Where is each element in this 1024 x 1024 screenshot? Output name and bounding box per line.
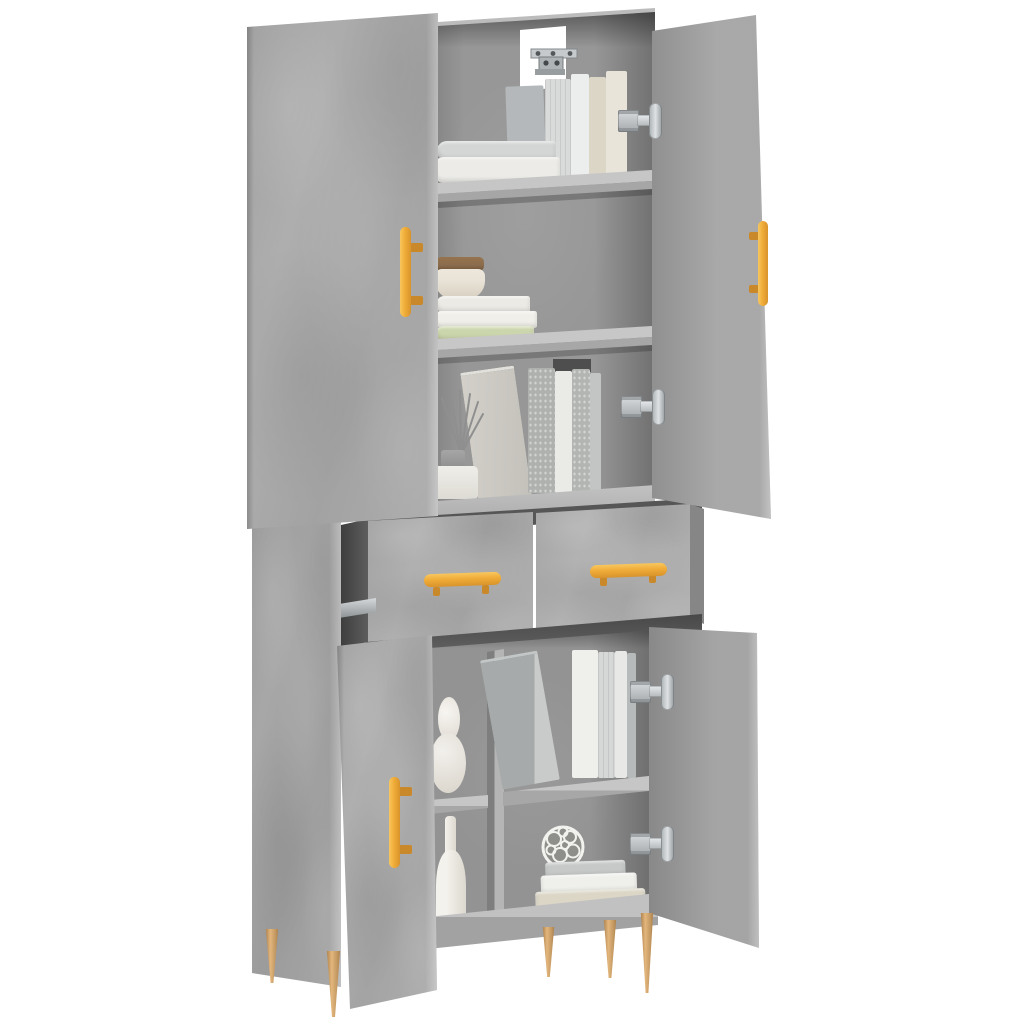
gourd-vase-body — [430, 733, 466, 793]
upper-shelf-2 — [438, 325, 652, 367]
left-drawer-handle-stub — [482, 585, 489, 594]
lower-door-hinge-top — [628, 673, 674, 711]
upper-left-door[interactable] — [247, 13, 438, 530]
diffuser-reeds-icon — [438, 388, 486, 458]
cabinet-left-side-panel — [252, 507, 341, 987]
left-drawer[interactable] — [365, 511, 533, 647]
upper-shelf-1 — [438, 170, 652, 210]
upper-door-hinge-top — [616, 102, 662, 140]
right-drawer-handle-stub — [600, 577, 607, 586]
standing-book-white-lower — [572, 650, 598, 778]
upper-left-door-handle-stub — [410, 243, 423, 252]
lower-left-door-handle-stub — [399, 787, 412, 796]
standing-book-beige — [589, 77, 606, 182]
lower-door-hinge-bottom — [628, 825, 674, 863]
left-drawer-gap — [341, 518, 368, 648]
product-photo-stage — [0, 0, 1024, 1024]
standing-book-grey-lower — [627, 653, 636, 778]
leaning-book-white — [555, 371, 572, 493]
upper-left-door-handle[interactable] — [400, 227, 411, 317]
side-panel-front-edge — [330, 507, 341, 987]
right-drawer-side-panel — [690, 502, 704, 624]
leaning-book-speckled-1 — [528, 368, 555, 493]
leaning-book-grey-thin — [590, 373, 601, 493]
left-drawer-handle[interactable] — [424, 572, 501, 588]
lower-left-door-handle-stub — [399, 845, 412, 854]
cabinet-leg — [542, 927, 555, 977]
diffuser-white-jar — [432, 466, 478, 499]
upper-left-door-handle-stub — [410, 296, 423, 305]
leaning-book-speckled-2 — [572, 369, 590, 493]
left-drawer-handle-stub — [433, 587, 440, 596]
standing-book-white-lower-2 — [615, 651, 627, 778]
cabinet-leg — [603, 920, 617, 978]
standing-book-white — [571, 74, 589, 182]
upper-right-door[interactable] — [652, 13, 771, 519]
bowl-body — [435, 269, 485, 299]
standing-book-pages-lower — [598, 652, 615, 778]
lower-left-door-handle[interactable] — [389, 777, 400, 868]
right-drawer-handle[interactable] — [590, 563, 667, 579]
upper-door-hinge-bottom — [619, 388, 665, 426]
lower-left-door[interactable] — [337, 635, 437, 1009]
right-drawer[interactable] — [536, 503, 690, 631]
upper-right-door-handle[interactable] — [758, 221, 768, 306]
cabinet-leg — [640, 913, 654, 993]
